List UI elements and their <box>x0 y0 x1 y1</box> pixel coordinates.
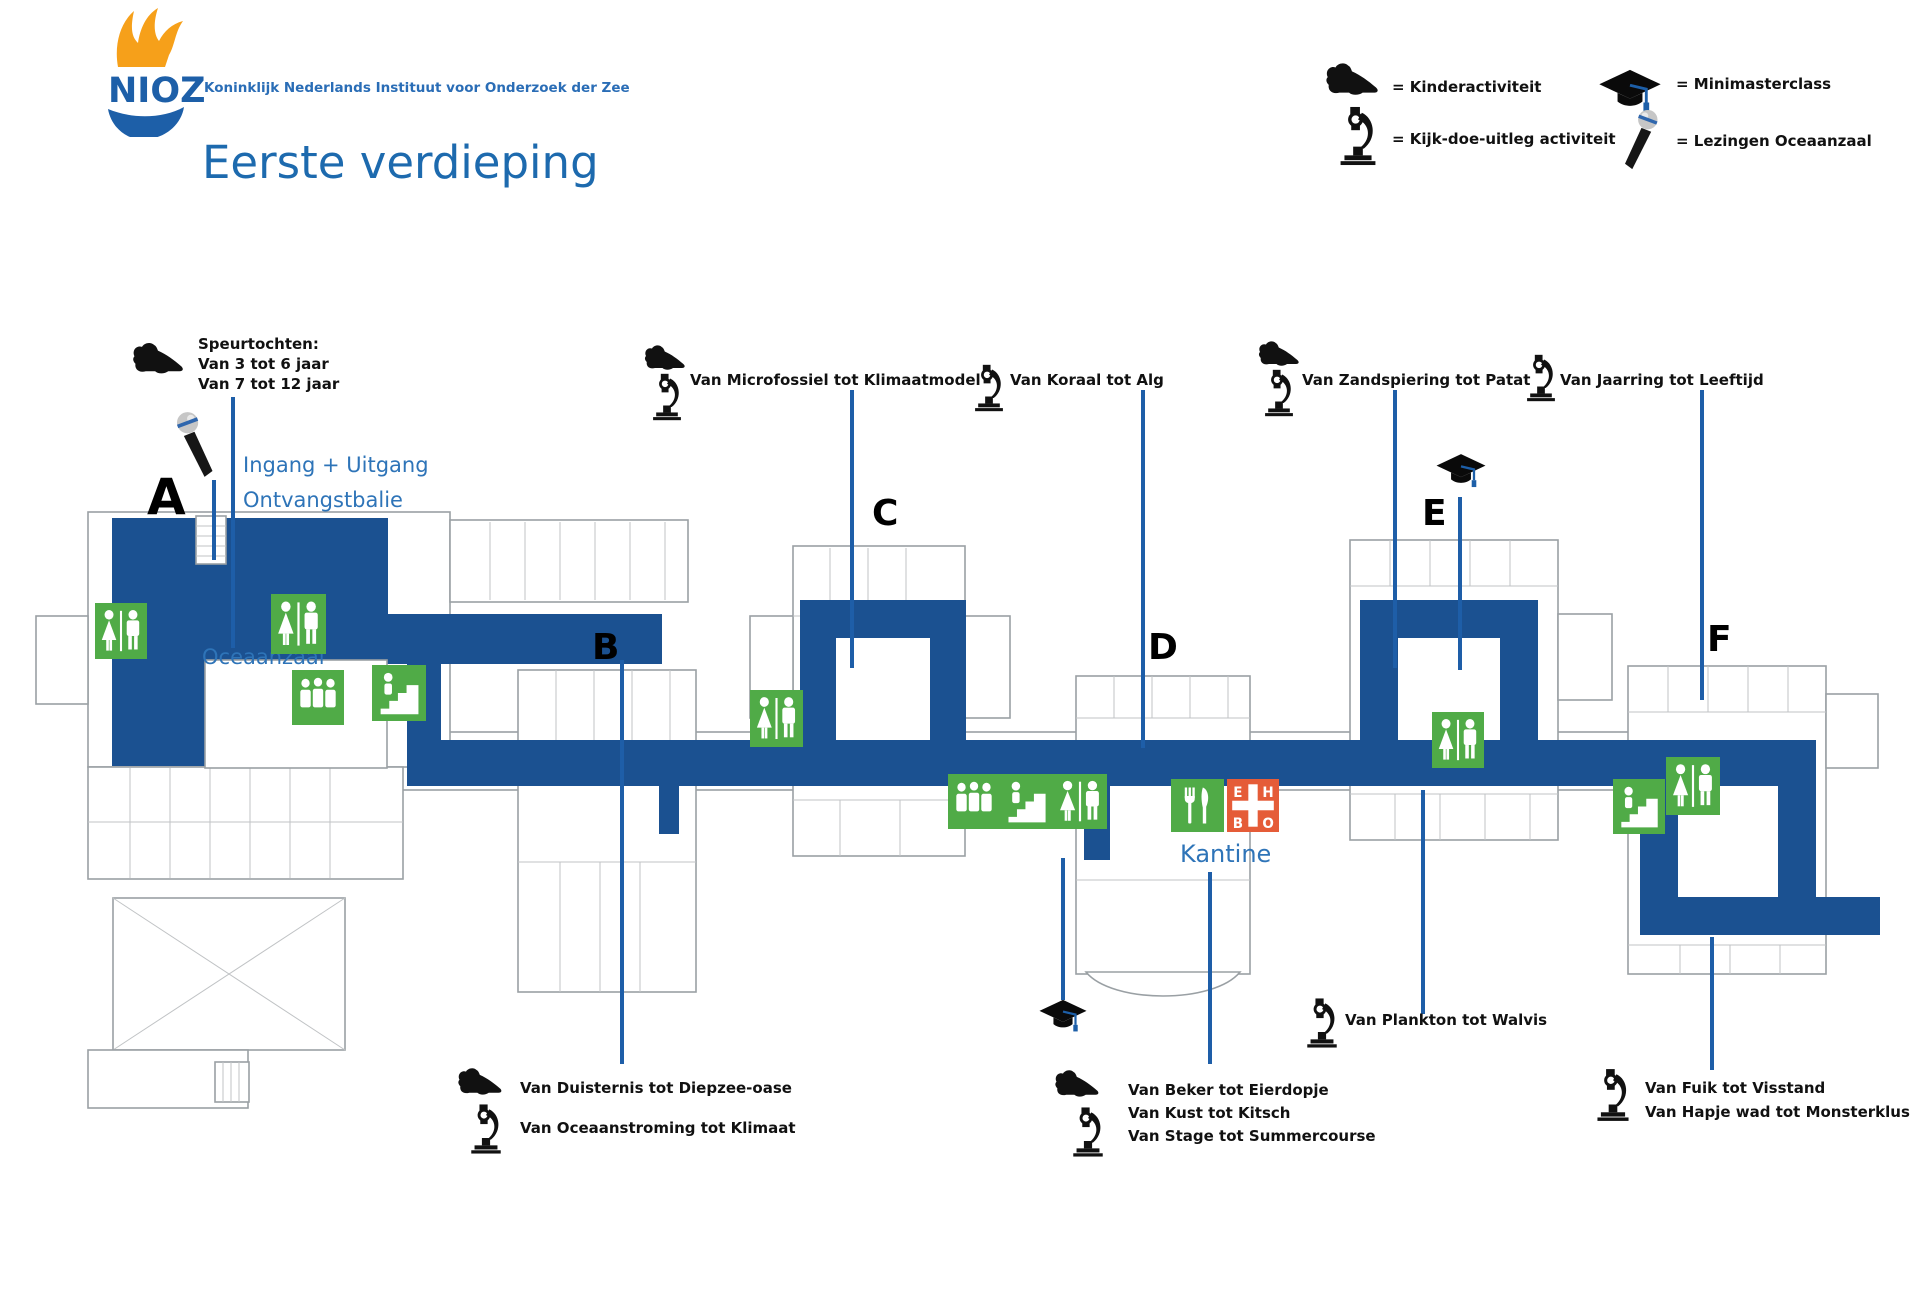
floorplan-map: NIOZ Koninklijk Nederlands Instituut voo… <box>0 0 1920 1294</box>
wc-icon <box>750 690 803 747</box>
microphone-icon <box>172 410 218 480</box>
label-ingang-uitgang: Ingang + Uitgang <box>243 453 429 477</box>
building-label-f: F <box>1707 622 1732 658</box>
activity-zandspiering: Van Zandspiering tot Patat <box>1302 370 1530 390</box>
activity-hapje: Van Hapje wad tot Monsterklus <box>1645 1102 1910 1122</box>
microscope-icon <box>972 363 1006 413</box>
wc-icon <box>1666 757 1720 815</box>
seal-icon <box>640 342 688 376</box>
elevator-icon <box>948 774 1000 829</box>
legend-lezingen: = Lezingen Oceaanzaal <box>1676 132 1872 150</box>
nioz-logo: NIOZ <box>90 5 205 137</box>
building-label-c: C <box>872 496 898 532</box>
label-ontvangstbalie: Ontvangstbalie <box>243 488 403 512</box>
building-label-d: D <box>1148 630 1178 666</box>
label-kantine: Kantine <box>1180 840 1271 868</box>
activity-microfossiel: Van Microfossiel tot Klimaatmodel <box>690 370 981 390</box>
ehbo-letter-e: E <box>1233 785 1242 801</box>
ehbo-letter-h: H <box>1262 785 1273 801</box>
activity-stage: Van Stage tot Summercourse <box>1128 1126 1376 1146</box>
page-title: Eerste verdieping <box>202 136 599 189</box>
microscope-icon <box>468 1102 504 1156</box>
restaurant-icon <box>1171 779 1224 832</box>
wc-icon <box>95 603 147 659</box>
microscope-icon <box>1304 996 1340 1050</box>
stairs-icon <box>1000 774 1053 829</box>
activity-jaarring: Van Jaarring tot Leeftijd <box>1560 370 1764 390</box>
ehbo-first-aid-icon: E H B O <box>1227 779 1279 832</box>
graduation-cap-icon <box>1038 996 1088 1036</box>
building-label-b: B <box>592 630 619 666</box>
seal-icon <box>453 1064 505 1102</box>
building-label-e: E <box>1422 496 1447 532</box>
wc-icon <box>1053 774 1107 829</box>
legend-minimasterclass: = Minimasterclass <box>1676 75 1831 93</box>
ehbo-letter-o: O <box>1262 816 1273 832</box>
activity-beker: Van Beker tot Eierdopje <box>1128 1080 1329 1100</box>
ehbo-letter-b: B <box>1233 816 1243 832</box>
seal-icon <box>1050 1066 1102 1104</box>
microscope-icon <box>1594 1066 1632 1124</box>
microscope-icon <box>1262 368 1296 418</box>
wc-icon <box>271 594 326 654</box>
legend-kijkdoe: = Kijk-doe-uitleg activiteit <box>1392 130 1616 148</box>
activity-plankton: Van Plankton tot Walvis <box>1345 1010 1547 1030</box>
microscope-icon <box>650 372 684 422</box>
activity-koraal: Van Koraal tot Alg <box>1010 370 1164 390</box>
microscope-icon <box>1524 352 1558 404</box>
speurtochten-3-6: Van 3 tot 6 jaar <box>198 354 329 374</box>
stairs-icon <box>1613 779 1665 834</box>
org-name: Koninklijk Nederlands Instituut voor Ond… <box>204 80 630 96</box>
seal-icon <box>1320 58 1382 104</box>
graduation-cap-icon <box>1435 450 1487 492</box>
activity-fuik: Van Fuik tot Visstand <box>1645 1078 1825 1098</box>
seal-icon <box>127 338 187 382</box>
microscope-icon <box>1070 1104 1106 1160</box>
wc-icon <box>1432 712 1484 768</box>
activity-duisternis: Van Duisternis tot Diepzee-oase <box>520 1078 792 1098</box>
elevator-icon <box>292 670 344 725</box>
stairs-icon <box>372 665 426 721</box>
legend-kinderactiviteit: = Kinderactiviteit <box>1392 78 1541 96</box>
activity-oceaanstroming: Van Oceaanstroming tot Klimaat <box>520 1118 796 1138</box>
microphone-icon <box>1620 108 1662 172</box>
seal-icon <box>1254 338 1302 372</box>
microscope-icon <box>1336 106 1380 166</box>
speurtochten-7-12: Van 7 tot 12 jaar <box>198 374 339 394</box>
stairwell-notch <box>196 516 226 564</box>
logo-text: NIOZ <box>108 71 205 111</box>
activity-kust: Van Kust tot Kitsch <box>1128 1103 1290 1123</box>
speurtochten-title: Speurtochten: <box>198 334 319 354</box>
